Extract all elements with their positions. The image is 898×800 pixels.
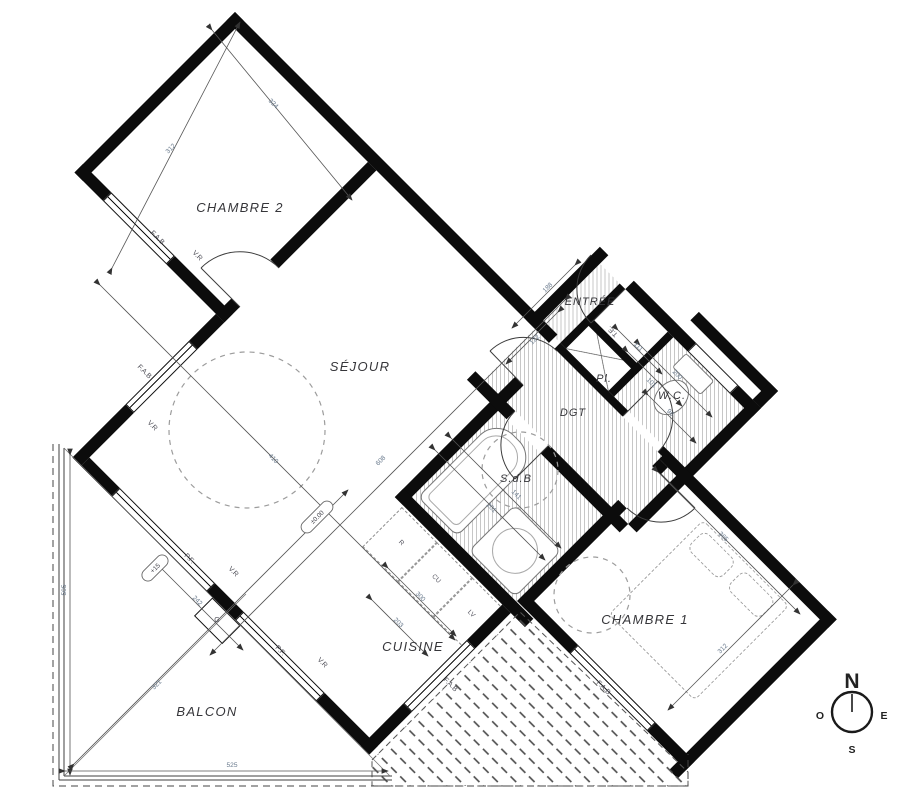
room-label-chambre2: CHAMBRE 2 [196,200,284,215]
dim-chambre2-a: 312 [165,142,178,155]
dim-cuisine-a: 300 [414,591,427,604]
dim-sdb-a: 201 [485,502,498,515]
dim-sejour-b: 410 [267,453,280,466]
door-arcs [201,252,695,522]
window-label-pf: P.F. [183,553,196,566]
window-label-fab: F.A.B [136,364,153,381]
dim-chambre2-b: 324 [267,98,280,111]
floor-plan: 312 324 608 410 188 122 201 141 200 101 … [0,0,898,800]
dim-entree-b: 122 [529,333,542,346]
room-label-chambre1: CHAMBRE 1 [601,612,689,627]
room-label-te: T.E. [606,324,620,338]
dim-balcon-bay: 242 [191,595,204,608]
kitchen-unit-labels: R CU LV [397,539,477,620]
room-labels: CHAMBRE 2 SÉJOUR ENTRÉE DGT W.C. S.d.B C… [176,200,688,719]
dim-sejour-a: 608 [375,454,388,467]
compass-east: E [880,710,887,722]
window-label-vr: V.R [146,420,159,433]
dim-entree-a: 188 [542,281,555,294]
room-label-balcon: BALCON [176,704,237,719]
window-label-vr: V.R [191,250,204,263]
room-label-dgt: DGT [560,407,587,419]
room-label-sejour: SÉJOUR [330,359,391,374]
unit-label-cooktop: CU [430,573,442,585]
dim-dgt-a: 111 [632,341,644,353]
unit-label-fridge: R [397,539,405,547]
dim-wc-c: 96 [665,408,675,418]
level-marker-zero: ±0.00 [299,499,336,536]
dim-cuisine-b: 203 [392,617,405,630]
annotation-layer: 312 324 608 410 188 122 201 141 200 101 … [0,0,898,800]
window-label-fab: F.A.B [149,230,166,247]
dim-balcon-bottom: 525 [226,762,237,769]
compass: N E S O [816,670,888,756]
compass-south: S [848,744,855,756]
furniture-circles [169,352,630,633]
room-label-cuisine: CUISINE [382,639,444,654]
dim-wc-b: 101 [645,377,658,390]
compass-north: N [844,670,859,693]
window-label-vr: V.R [316,657,329,670]
room-label-placard: Pl. [596,373,612,385]
dim-wc-a: 200 [671,369,684,382]
dim-balcon-left: 505 [61,584,68,595]
dimension-lines [65,22,800,775]
window-label-vr: V.R [227,566,240,579]
dim-chambre1-b: 312 [717,642,730,655]
room-label-sdb: S.d.B [500,473,532,485]
level-marker-balcony: +15 [139,552,170,583]
dim-balcon-diag: 321 [151,678,164,691]
window-label-pf: P.F. [274,645,287,658]
room-label-wc: W.C. [658,390,686,402]
g-label: G [214,617,219,624]
dim-sdb-b: 141 [510,489,523,502]
dimension-labels: 312 324 608 410 188 122 201 141 200 101 … [61,98,730,769]
unit-label-dishwasher: LV [466,609,477,620]
room-label-entree: ENTRÉE [565,295,616,308]
compass-west: O [816,710,824,722]
